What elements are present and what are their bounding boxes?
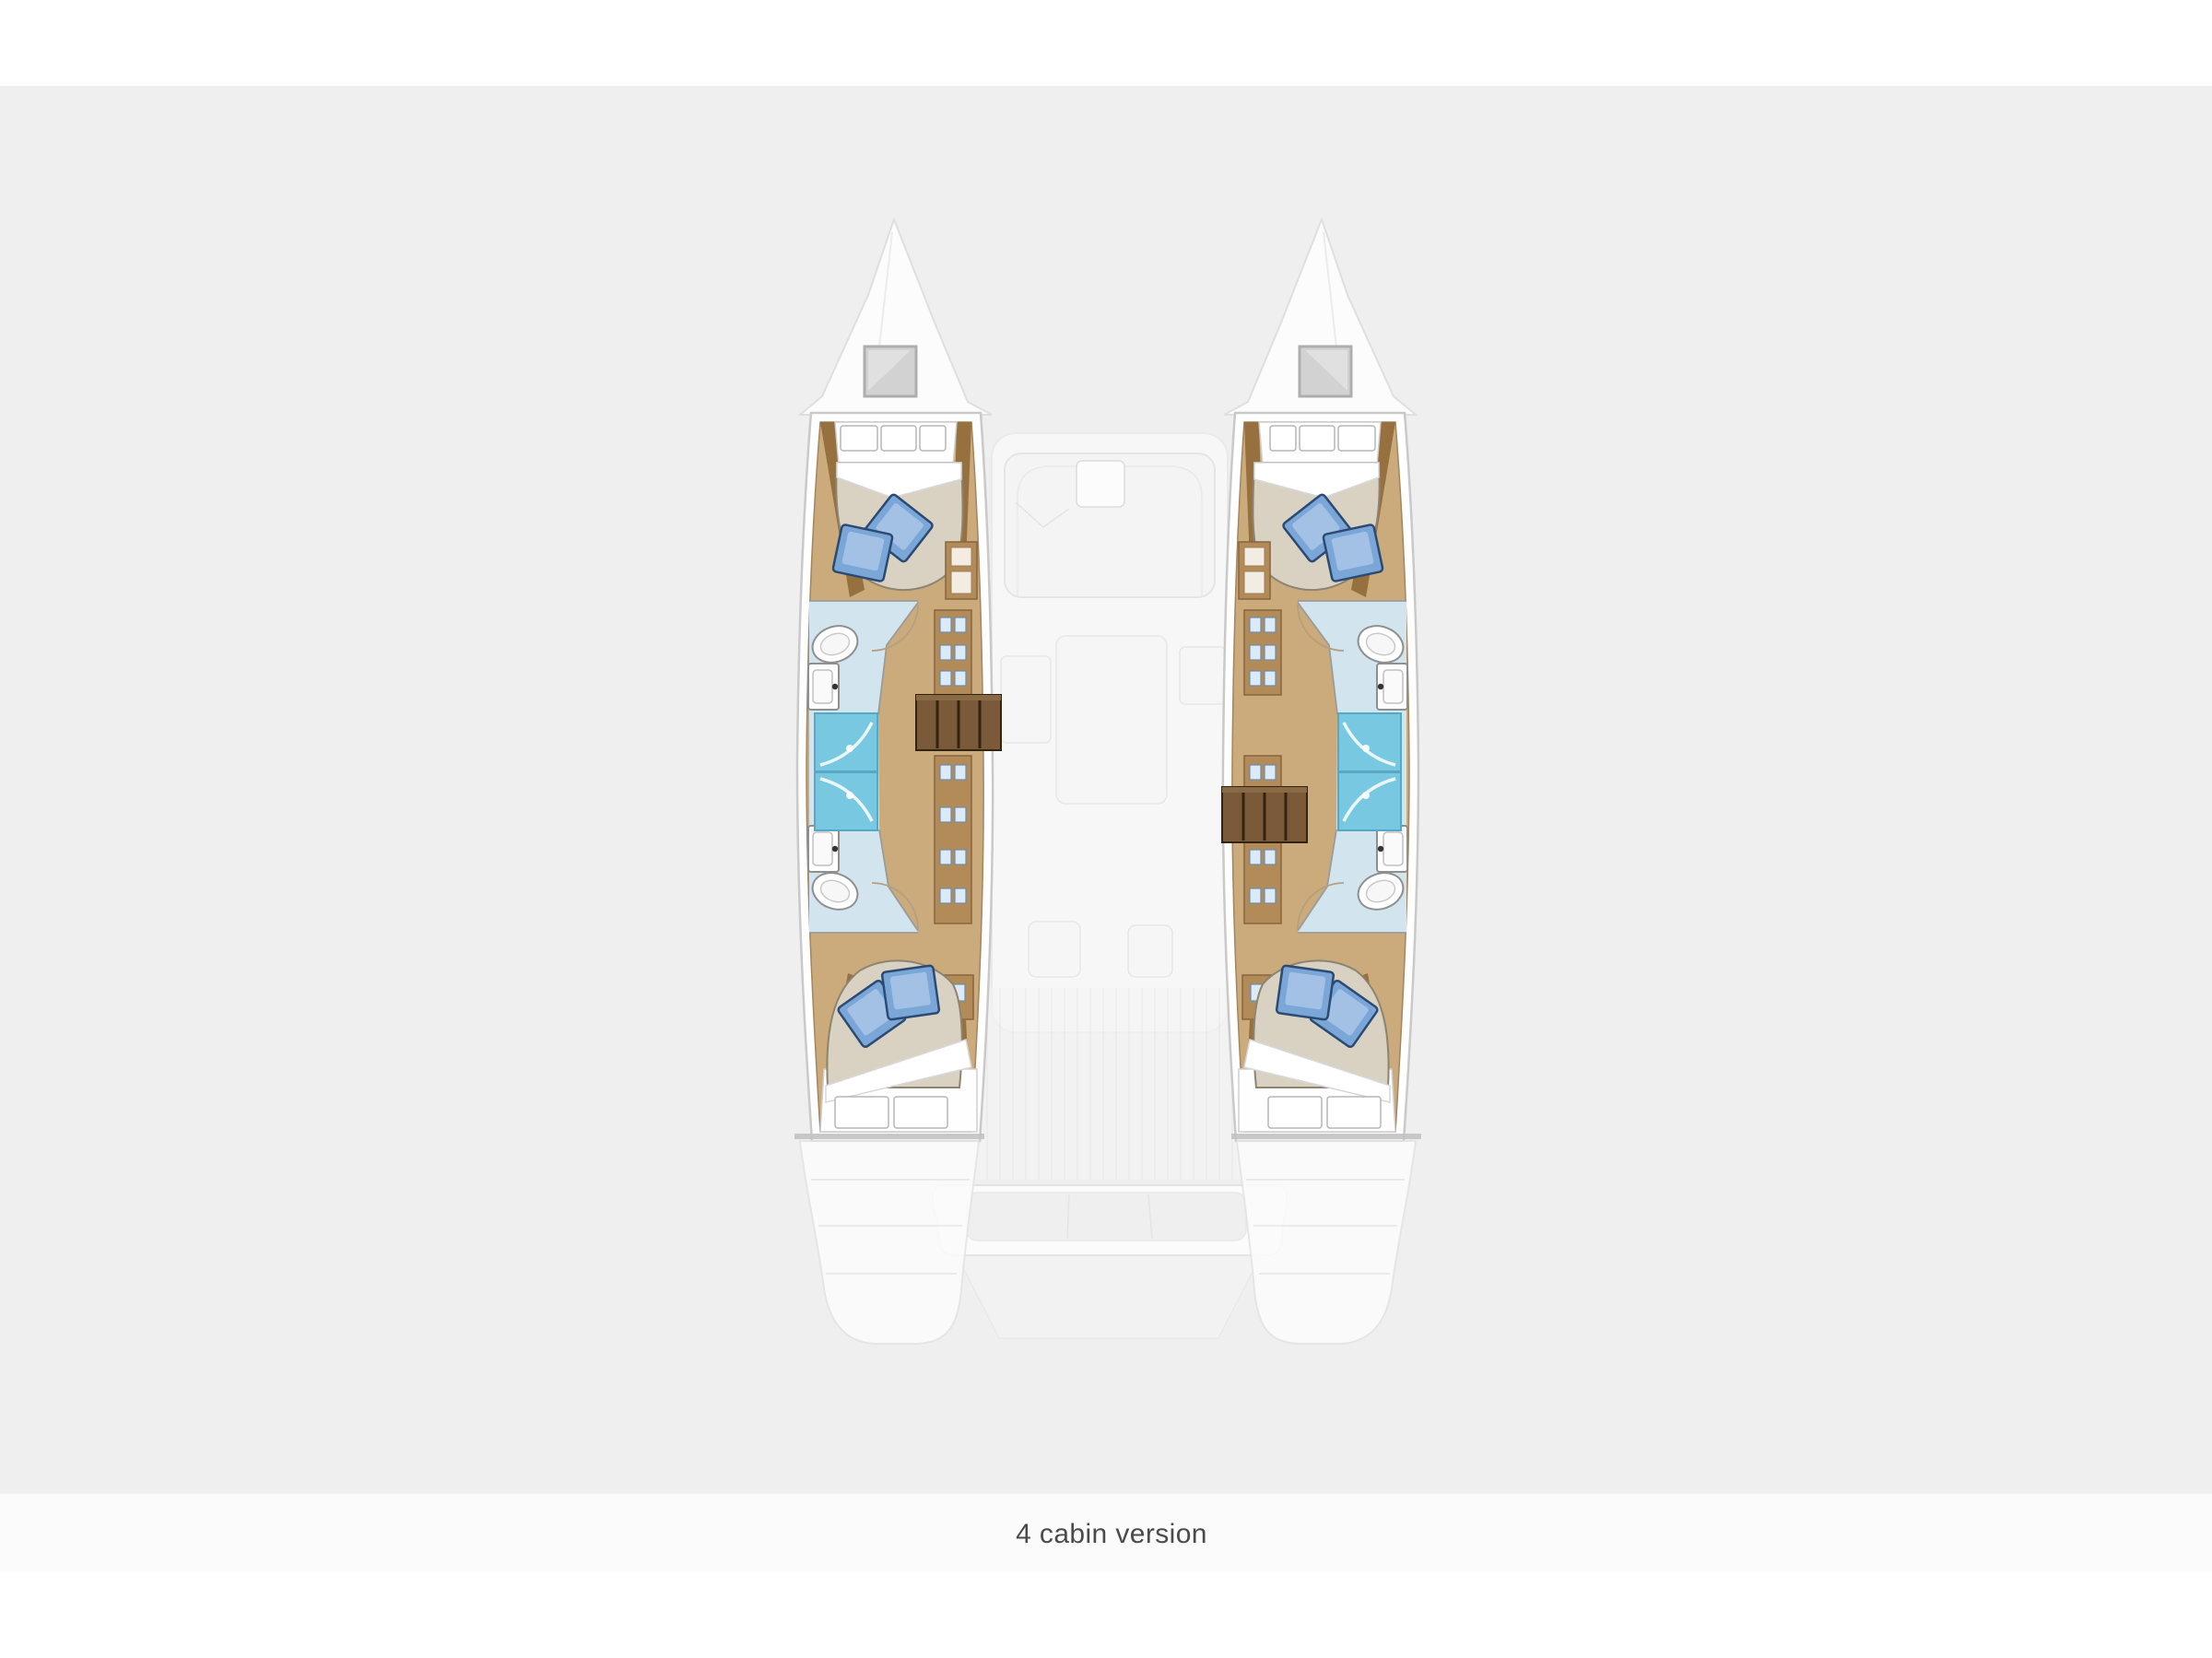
saloon-table	[1077, 461, 1124, 507]
saloon-sofa	[1005, 453, 1215, 597]
cockpit-bench	[933, 1185, 1288, 1255]
starboard-companionway-steps	[1222, 787, 1307, 842]
port-hull	[794, 219, 993, 1344]
starboard-hull	[1223, 219, 1421, 1344]
cockpit-floor	[973, 988, 1246, 1180]
catamaran-floor-plan	[0, 0, 2212, 1658]
plan-caption: 4 cabin version	[6, 1519, 2212, 1550]
port-companionway-steps	[916, 695, 1001, 750]
transom-platform	[957, 1255, 1261, 1338]
